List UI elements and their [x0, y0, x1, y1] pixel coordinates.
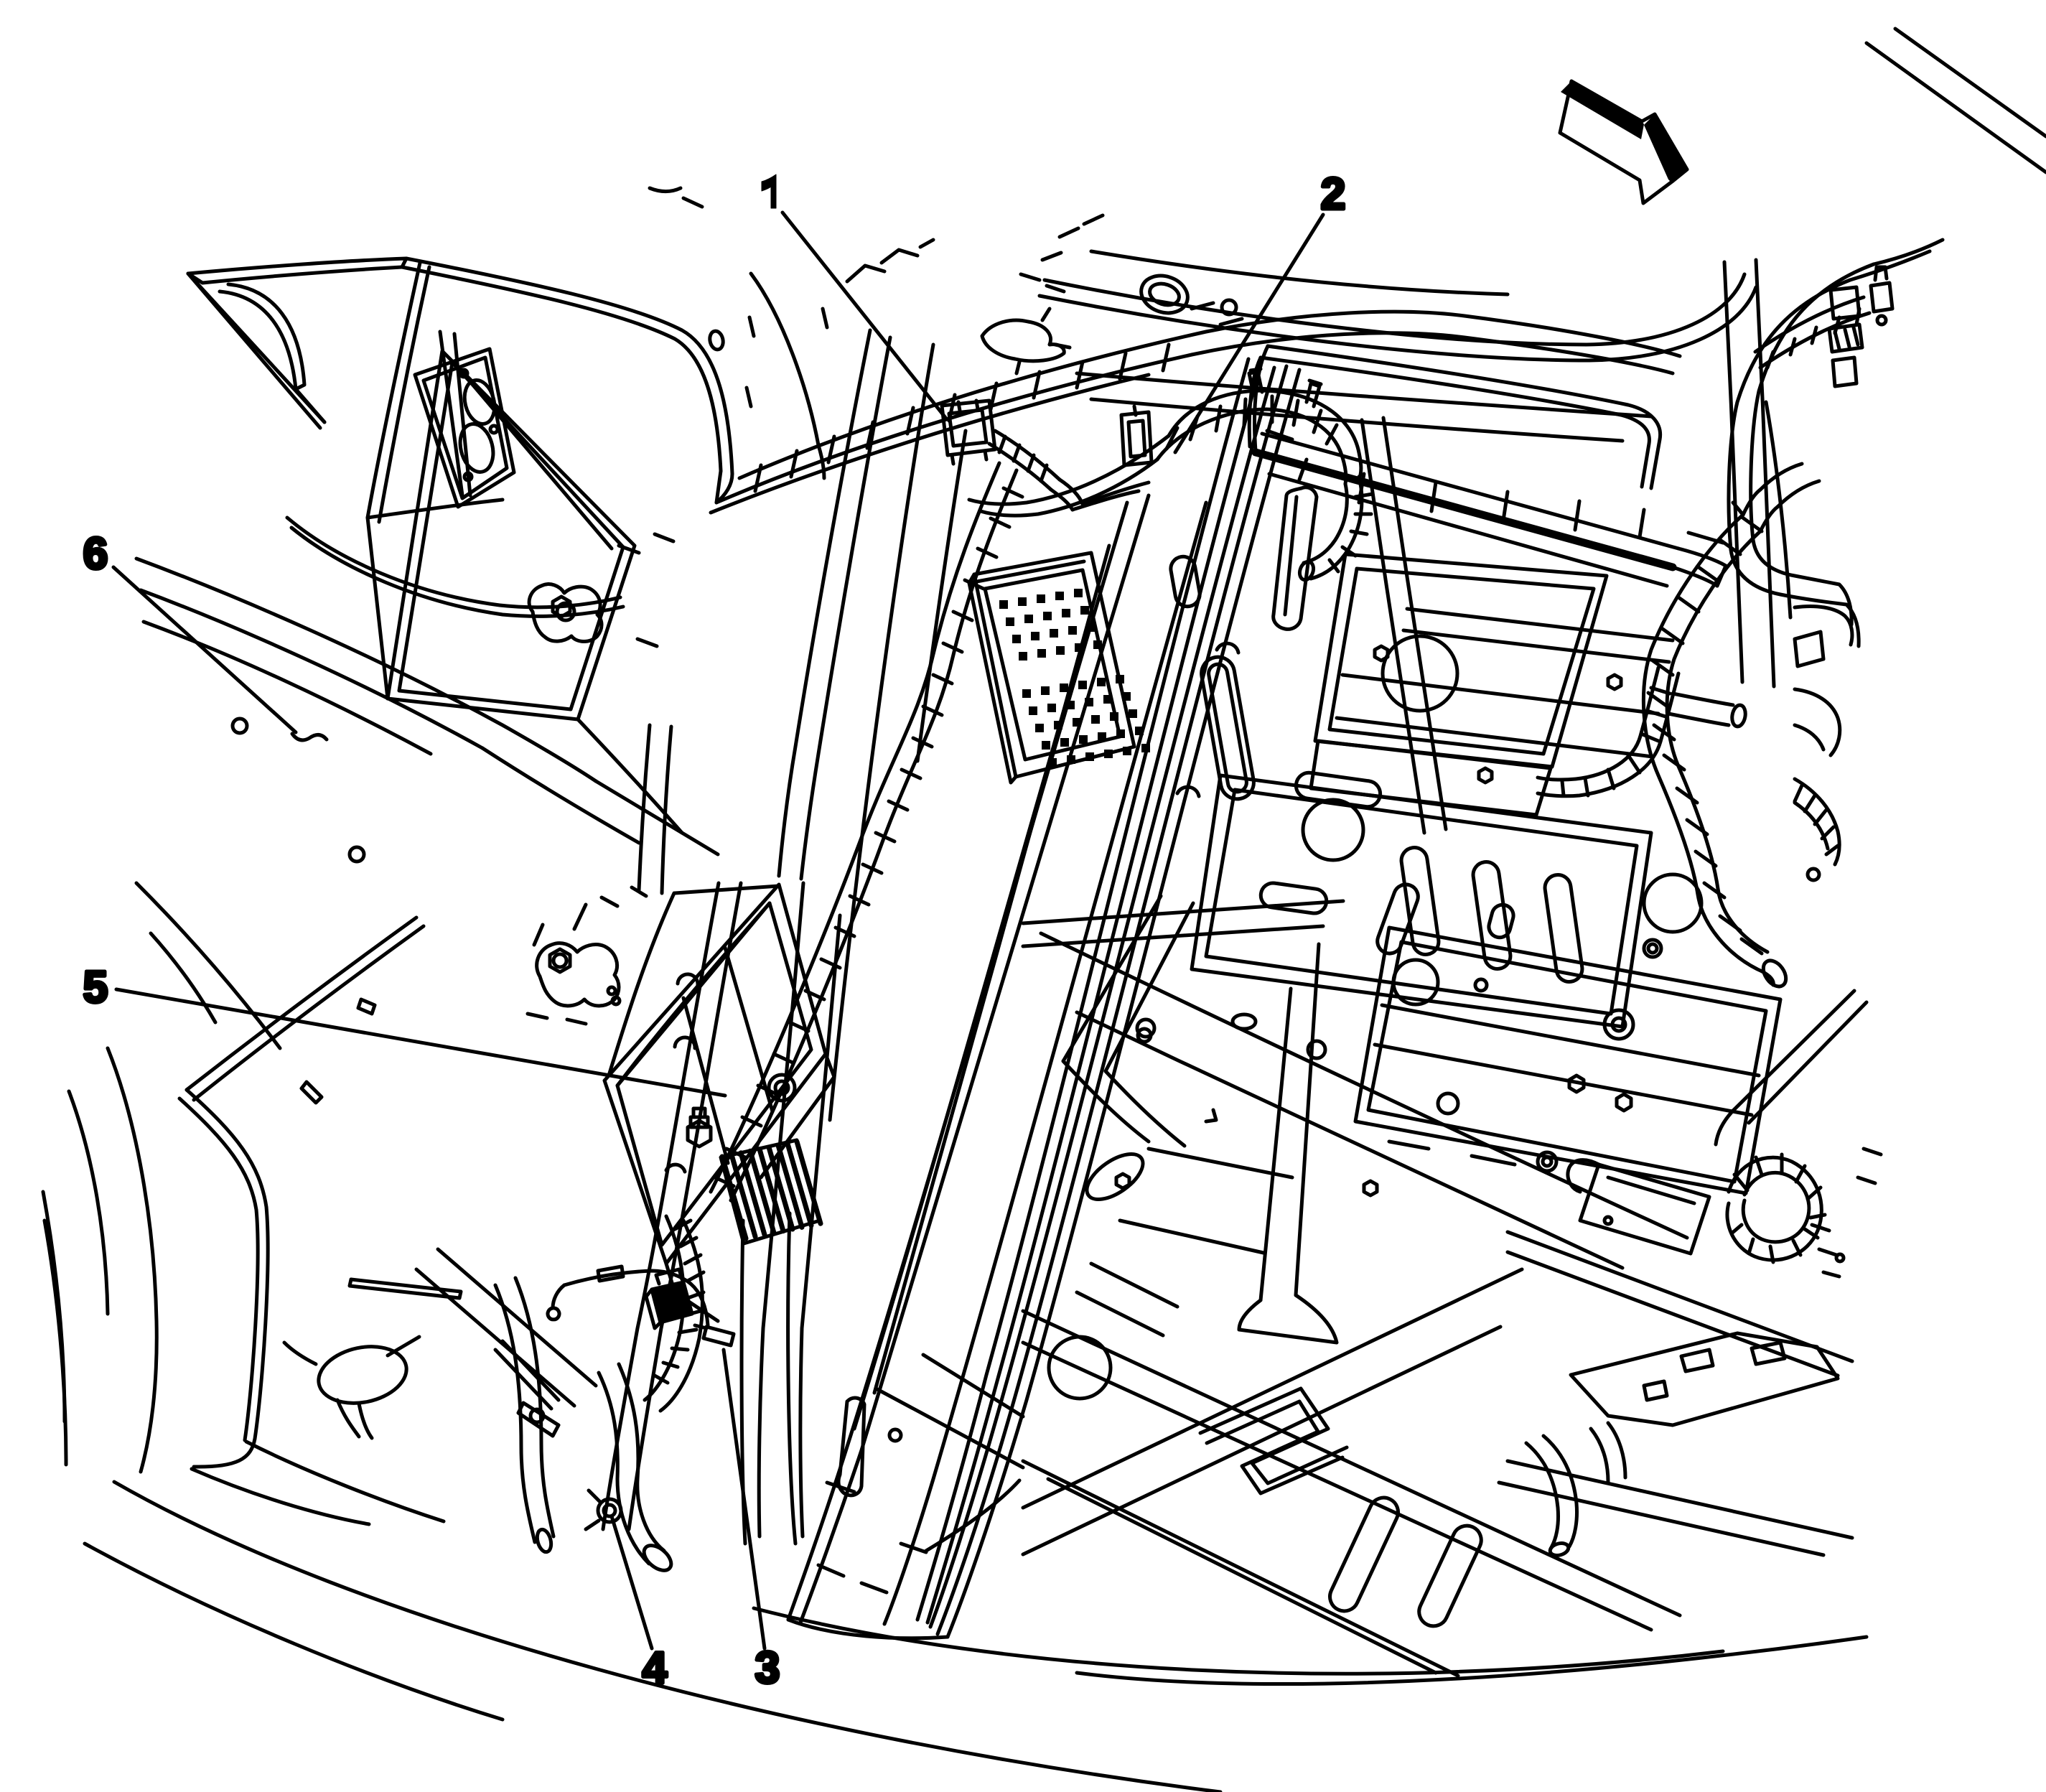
svg-text:5: 5	[83, 963, 108, 1012]
svg-text:3: 3	[755, 1643, 780, 1693]
svg-text:6: 6	[83, 529, 108, 579]
svg-text:2: 2	[1321, 169, 1345, 219]
